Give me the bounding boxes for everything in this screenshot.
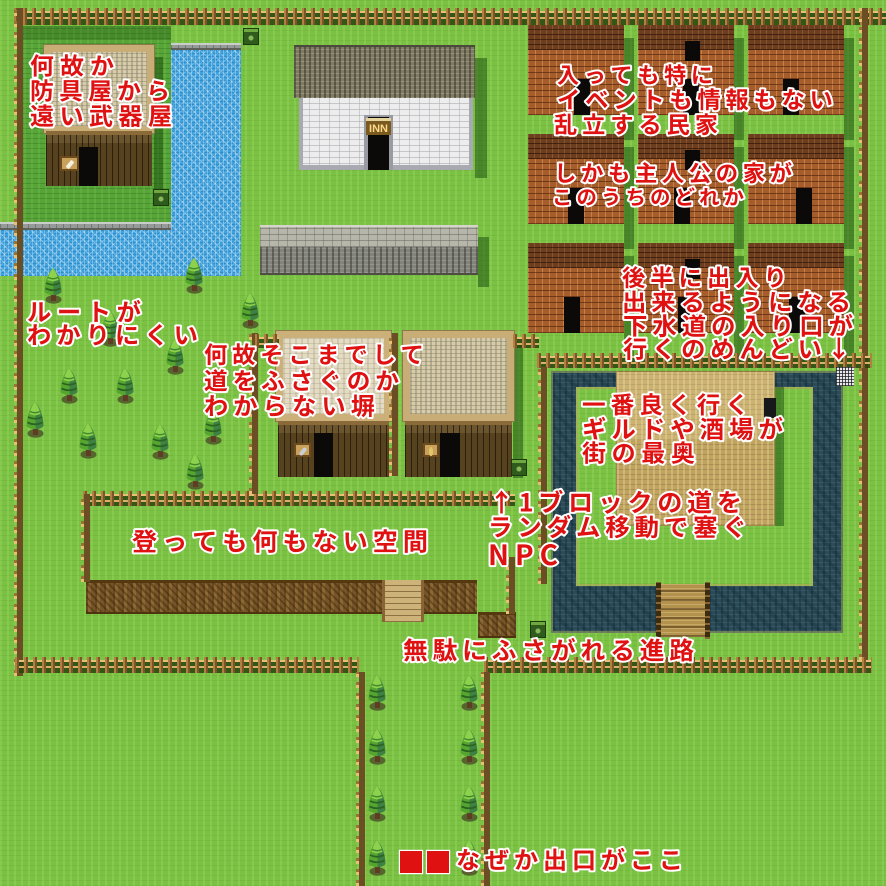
svg-text:INN: INN <box>369 123 388 135</box>
